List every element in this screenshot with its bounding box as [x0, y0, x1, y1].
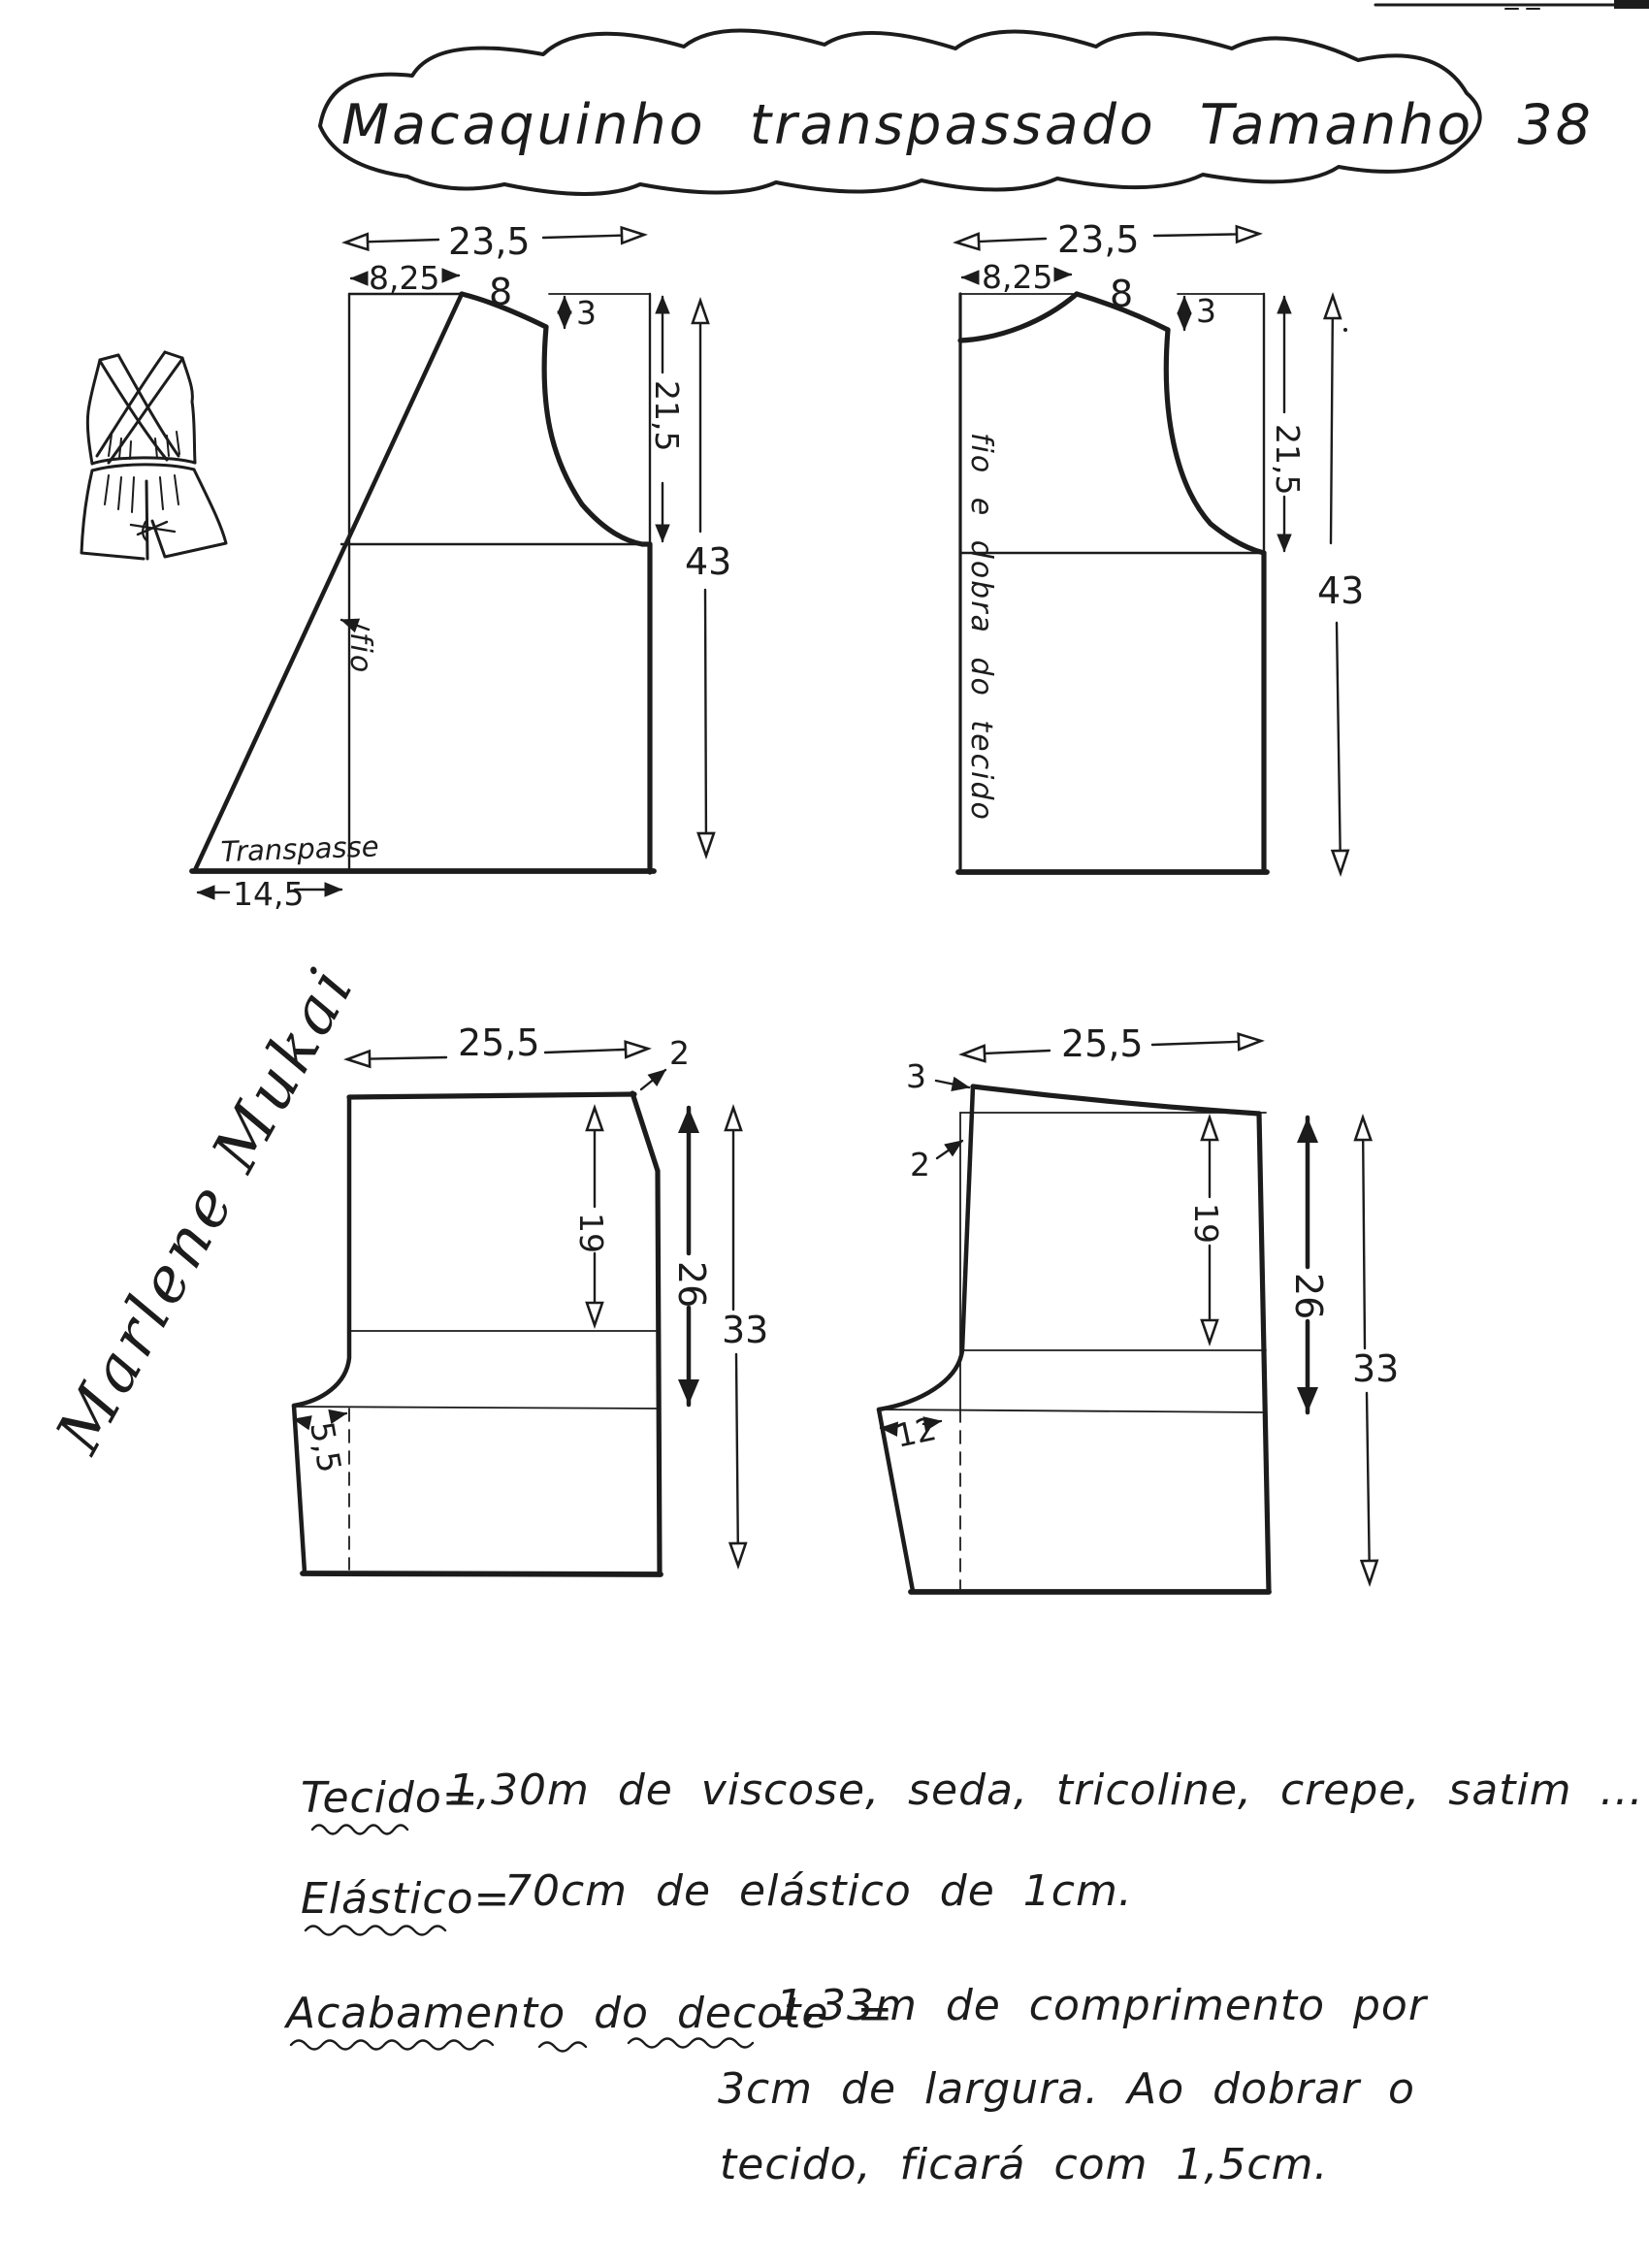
fb-width-arrow-left	[345, 240, 438, 243]
romper-left-side	[87, 360, 100, 464]
sf-sidedrop-label: 2	[669, 1034, 690, 1072]
bb-width-arrow-right	[1154, 234, 1259, 236]
sf-sidedrop-arrow	[641, 1070, 665, 1089]
notes: Tecido= 1,30m de viscose, seda, tricolin…	[283, 1766, 1643, 2189]
romper-gathers-top	[109, 432, 179, 459]
fb-wrap-diagonal	[195, 294, 462, 870]
sf-hip-label: 19	[572, 1213, 610, 1253]
sf-crotch-label: 26	[670, 1261, 713, 1308]
scan-speck	[1343, 328, 1347, 332]
fb-len-label: 43	[685, 540, 731, 583]
fb-drop-label: 3	[576, 294, 597, 332]
sb-ext-arrow-left	[881, 1428, 894, 1429]
elastic-label: Elástico=	[301, 1874, 510, 1924]
bb-dim-width: 23,5	[956, 218, 1259, 261]
bb-dim-drop: 3	[1184, 292, 1216, 330]
sf-front-rise	[294, 1097, 349, 1406]
page-title: Macaquinho transpassado Tamanho 38	[341, 93, 1594, 157]
sf-len-label: 33	[722, 1309, 768, 1351]
neckline-text-2: 3cm de largura. Ao dobrar o	[718, 2064, 1415, 2114]
fabric-text: 1,30m de viscose, seda, tricoline, crepe…	[448, 1766, 1643, 1815]
romper-right-shoulder	[165, 352, 182, 358]
bb-armhole-curve	[1166, 330, 1264, 553]
fb-wrap-label: Transpasse	[220, 829, 379, 868]
bb-width-label: 23,5	[1057, 218, 1140, 261]
romper-gathers-bottom	[105, 475, 178, 512]
romper-left-shoulder	[100, 355, 118, 360]
fabric-underline	[312, 1826, 407, 1834]
scan-artifact	[1343, 0, 1649, 332]
bb-ah-label: 21,5	[1269, 424, 1307, 495]
sb-dim-side-offset: 2	[910, 1141, 962, 1183]
elastic-text: 70cm de elástico de 1cm.	[504, 1866, 1133, 1916]
sf-width-label: 25,5	[458, 1021, 540, 1064]
sf-side-edge	[658, 1171, 660, 1572]
fb-dim-length: 43	[685, 301, 731, 856]
sf-inseam	[294, 1406, 305, 1572]
bb-drop-label: 3	[1196, 292, 1216, 330]
romper-center-split	[146, 481, 147, 559]
fb-dim-shoulder-offset: 8,25	[351, 259, 459, 297]
sf-ext-arrow-right	[332, 1413, 346, 1416]
sf-width-arrow-left	[347, 1057, 446, 1059]
sb-raise-label: 3	[906, 1057, 926, 1095]
sb-crotch-label: 26	[1287, 1273, 1330, 1319]
sb-back-rise	[879, 1086, 973, 1409]
sb-dim-width: 25,5	[962, 1022, 1261, 1065]
sf-dim-crotch-depth: 26	[670, 1108, 713, 1405]
neckline-underline-2	[539, 2043, 586, 2052]
sf-ext-label: 5,5	[303, 1419, 349, 1475]
sf-hem-edge	[303, 1573, 661, 1574]
fb-armhole-curve	[544, 327, 650, 544]
front-bodice-piece: 23,5 8,25 8 3 21,5 43 fio Transpasse	[192, 220, 731, 913]
romper-right-side	[182, 358, 195, 463]
pattern-sheet: Macaquinho transpassado Tamanho 38	[0, 0, 1649, 2268]
sb-len-label: 33	[1352, 1347, 1399, 1390]
fb-dim-armhole-depth: 21,5	[648, 297, 686, 541]
fb-grain-label: fio	[343, 632, 377, 674]
back-bodice-piece: 23,5 8,25 8 3 21,5 43 fio e dobra do tec…	[956, 218, 1364, 873]
fb-grain: fio	[341, 620, 377, 674]
neckline-underline-3	[629, 2039, 753, 2048]
sf-dim-width: 25,5	[347, 1021, 648, 1064]
neckline-text-1: 1,33m de comprimento por	[776, 1981, 1429, 2030]
sf-waist-edge	[349, 1094, 634, 1097]
bb-dim-shoulder-offset: 8,25	[962, 258, 1071, 296]
sb-sideoffset-arrow	[937, 1141, 962, 1158]
scan-blob	[1614, 0, 1649, 9]
designer-signature: Marlene Mukai	[43, 954, 370, 1466]
bb-dim-armhole-depth: 21,5	[1269, 297, 1307, 551]
romper-waistband	[92, 458, 195, 470]
sf-dim-side-drop: 2	[641, 1034, 690, 1089]
sb-crotch-line	[879, 1409, 1266, 1412]
sb-width-label: 25,5	[1061, 1022, 1144, 1065]
bb-len-arrow-bottom	[1337, 623, 1341, 873]
sb-hip-label: 19	[1187, 1203, 1225, 1244]
bb-len-label: 43	[1317, 569, 1364, 612]
sb-dim-length: 33	[1352, 1118, 1399, 1583]
bb-width-arrow-left	[956, 239, 1046, 243]
sf-dim-hip-depth: 19	[572, 1108, 610, 1325]
fb-len-arrow-bottom	[705, 590, 706, 856]
fb-wrapw-label: 14,5	[233, 875, 304, 913]
sb-dim-hip-depth: 19	[1187, 1118, 1225, 1343]
fb-width-label: 23,5	[448, 220, 531, 263]
bb-dim-length: 43	[1317, 296, 1364, 873]
title-bubble: Macaquinho transpassado Tamanho 38	[320, 30, 1594, 194]
sf-len-arrow-bottom	[736, 1354, 738, 1566]
sb-waist-edge	[973, 1086, 1259, 1114]
bb-grain-label: fio e dobra do tecido	[964, 433, 998, 822]
neckline-text-3: tecido, ficará com 1,5cm.	[720, 2140, 1328, 2189]
neckline-underline-1	[291, 2041, 493, 2050]
romper-right-leg	[152, 470, 226, 557]
shorts-front-piece: 25,5 2 19 26 33 5,5	[294, 1021, 768, 1574]
sf-dim-length: 33	[722, 1108, 768, 1566]
bb-shoffset-label: 8,25	[982, 258, 1052, 296]
sb-side-edge	[1259, 1114, 1269, 1592]
fb-width-arrow-right	[543, 235, 644, 238]
bb-shoulder-label: 8	[1110, 273, 1133, 315]
sb-len-arrow-bottom	[1367, 1393, 1370, 1583]
fb-shoulder-label: 8	[489, 271, 512, 313]
sb-width-arrow-left	[962, 1051, 1050, 1054]
sf-dim-crotch-ext: 5,5	[294, 1413, 349, 1475]
sb-sideoffset-label: 2	[910, 1146, 930, 1183]
sb-ext-label: 12	[892, 1409, 940, 1455]
elastic-underline	[306, 1927, 445, 1935]
sb-dim-crotch-depth: 26	[1287, 1118, 1330, 1412]
fb-dim-wrap-width: 14,5	[198, 875, 341, 913]
shorts-back-piece: 25,5 3 2 19 26 33 12	[879, 1022, 1399, 1592]
bb-neckline-curve	[960, 294, 1077, 340]
sf-side-slant	[632, 1093, 658, 1171]
pattern-canvas: Macaquinho transpassado Tamanho 38	[0, 0, 1649, 2268]
sb-raise-arrow	[936, 1081, 969, 1087]
fb-ah-label: 21,5	[648, 380, 686, 451]
sb-dim-crotch-ext: 12	[881, 1409, 941, 1455]
fb-dim-width: 23,5	[345, 220, 644, 263]
fb-dim-drop: 3	[565, 294, 597, 332]
fb-grain-arrow	[341, 620, 369, 630]
sb-len-arrow-top	[1363, 1118, 1365, 1348]
sb-dim-waist-raise: 3	[906, 1057, 969, 1095]
sb-width-arrow-right	[1152, 1041, 1261, 1045]
fb-shoffset-label: 8,25	[369, 259, 439, 297]
garment-illustration	[81, 352, 226, 559]
sf-width-arrow-right	[545, 1049, 648, 1053]
bb-len-arrow-top	[1331, 296, 1333, 543]
